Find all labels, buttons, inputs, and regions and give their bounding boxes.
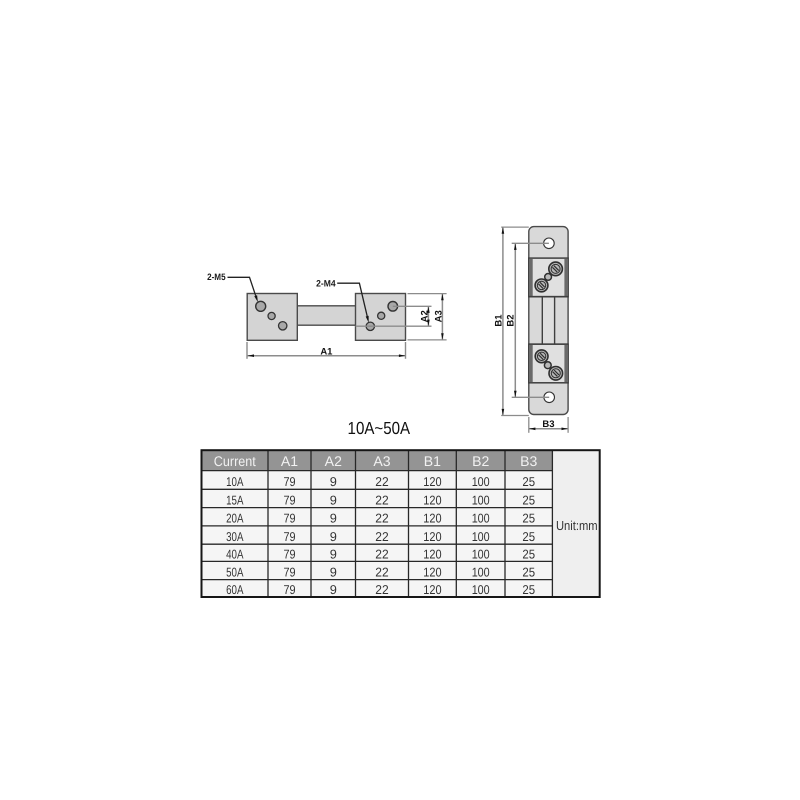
svg-text:B1: B1 [493,314,504,327]
svg-text:9: 9 [330,529,337,544]
svg-text:9: 9 [330,582,337,597]
svg-text:100: 100 [472,492,490,507]
svg-text:100: 100 [472,582,490,597]
svg-text:120: 120 [423,511,441,526]
svg-text:120: 120 [423,474,441,489]
svg-text:22: 22 [375,474,388,489]
svg-text:A1: A1 [281,453,298,469]
svg-text:25: 25 [522,564,535,579]
svg-text:100: 100 [472,564,490,579]
svg-text:A2: A2 [420,310,431,322]
svg-text:40A: 40A [226,547,244,562]
svg-text:B3: B3 [542,419,554,430]
svg-text:9: 9 [330,547,337,562]
svg-text:120: 120 [423,529,441,544]
svg-text:120: 120 [423,547,441,562]
svg-text:10A~50A: 10A~50A [348,418,411,438]
svg-text:B2: B2 [472,453,489,469]
svg-text:22: 22 [375,529,388,544]
svg-text:100: 100 [472,474,490,489]
svg-text:A3: A3 [433,310,444,322]
svg-text:9: 9 [330,474,337,489]
svg-text:9: 9 [330,511,337,526]
svg-text:79: 79 [283,582,295,597]
svg-text:22: 22 [375,547,388,562]
svg-text:25: 25 [522,474,535,489]
svg-text:79: 79 [283,564,295,579]
svg-text:30A: 30A [226,529,244,544]
svg-text:2-M5: 2-M5 [207,272,226,282]
svg-text:A1: A1 [320,347,333,358]
svg-text:79: 79 [283,511,295,526]
svg-text:100: 100 [472,511,490,526]
svg-text:9: 9 [330,492,337,507]
svg-text:A3: A3 [373,453,390,469]
svg-text:9: 9 [330,564,337,579]
svg-text:Current: Current [214,453,256,469]
svg-text:50A: 50A [226,564,244,579]
svg-text:B3: B3 [520,453,537,469]
svg-text:79: 79 [283,529,295,544]
svg-text:25: 25 [522,582,535,597]
svg-text:22: 22 [375,511,388,526]
svg-text:B1: B1 [424,453,441,469]
svg-text:100: 100 [472,547,490,562]
svg-text:10A: 10A [226,474,244,489]
svg-text:Unit:mm: Unit:mm [556,518,598,533]
svg-text:15A: 15A [226,492,244,507]
svg-text:B2: B2 [506,314,517,326]
svg-text:25: 25 [522,529,535,544]
svg-text:25: 25 [522,547,535,562]
svg-text:22: 22 [375,582,388,597]
svg-text:22: 22 [375,492,388,507]
svg-text:79: 79 [283,547,295,562]
svg-text:120: 120 [423,582,441,597]
svg-text:120: 120 [423,564,441,579]
svg-text:60A: 60A [226,582,244,597]
svg-text:A2: A2 [325,453,342,469]
svg-text:25: 25 [522,492,535,507]
svg-text:2-M4: 2-M4 [316,278,336,288]
svg-text:22: 22 [375,564,388,579]
svg-text:100: 100 [472,529,490,544]
svg-text:20A: 20A [226,511,244,526]
svg-text:79: 79 [283,492,295,507]
svg-text:120: 120 [423,492,441,507]
svg-text:79: 79 [283,474,295,489]
svg-text:25: 25 [522,511,535,526]
